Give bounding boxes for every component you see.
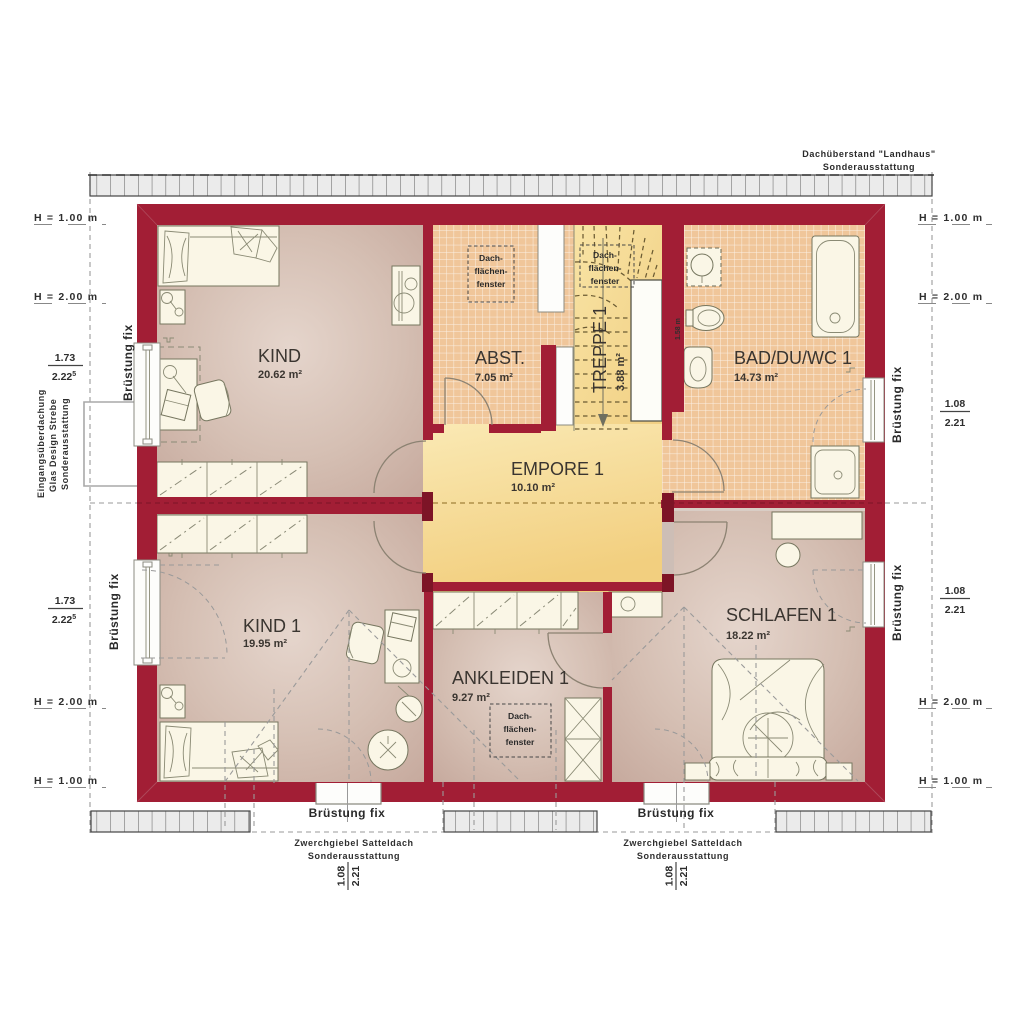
svg-text:Glas Design Strebe: Glas Design Strebe: [48, 399, 58, 492]
svg-text:H = 1.00 m: H = 1.00 m: [919, 212, 983, 224]
svg-text:1.58 m: 1.58 m: [675, 318, 682, 340]
svg-text:10.10 m²: 10.10 m²: [511, 482, 555, 494]
svg-text:Brüstung fix: Brüstung fix: [107, 573, 121, 650]
svg-text:SCHLAFEN 1: SCHLAFEN 1: [726, 605, 837, 625]
svg-text:Zwerchgiebel Satteldach: Zwerchgiebel Satteldach: [294, 838, 413, 848]
svg-text:Dachüberstand "Landhaus": Dachüberstand "Landhaus": [802, 149, 935, 159]
svg-text:TREPPE 1: TREPPE 1: [590, 306, 610, 393]
svg-text:fenster: fenster: [477, 279, 506, 289]
svg-text:Sonderausstattung: Sonderausstattung: [308, 851, 400, 861]
svg-text:2.21: 2.21: [945, 417, 966, 429]
svg-text:20.62 m²: 20.62 m²: [258, 369, 302, 381]
svg-text:Brüstung fix: Brüstung fix: [121, 324, 135, 401]
svg-text:flächen-: flächen-: [504, 724, 537, 734]
svg-text:7.05 m²: 7.05 m²: [475, 372, 513, 384]
svg-text:H = 1.00 m: H = 1.00 m: [919, 775, 983, 787]
svg-text:fenster: fenster: [506, 737, 535, 747]
svg-text:1.08: 1.08: [664, 866, 676, 887]
svg-text:1.73: 1.73: [55, 352, 76, 364]
svg-text:H = 2.00 m: H = 2.00 m: [919, 696, 983, 708]
svg-text:KIND: KIND: [258, 346, 301, 366]
svg-text:18.22 m²: 18.22 m²: [726, 630, 770, 642]
svg-text:Sonderausstattung: Sonderausstattung: [60, 398, 70, 490]
svg-text:Brüstung fix: Brüstung fix: [309, 806, 386, 820]
svg-text:19.95 m²: 19.95 m²: [243, 638, 287, 650]
svg-text:BAD/DU/WC 1: BAD/DU/WC 1: [734, 348, 852, 368]
svg-text:Brüstung fix: Brüstung fix: [638, 806, 715, 820]
svg-text:Sonderausstattung: Sonderausstattung: [823, 162, 915, 172]
svg-text:Sonderausstattung: Sonderausstattung: [637, 851, 729, 861]
svg-text:flächen-: flächen-: [475, 266, 508, 276]
svg-text:H = 1.00 m: H = 1.00 m: [34, 775, 98, 787]
svg-text:H = 2.00 m: H = 2.00 m: [34, 291, 98, 303]
svg-text:1.73: 1.73: [55, 595, 76, 607]
svg-text:2.21: 2.21: [678, 866, 690, 887]
svg-text:Zwerchgiebel Satteldach: Zwerchgiebel Satteldach: [623, 838, 742, 848]
svg-text:1.08: 1.08: [945, 398, 966, 410]
svg-text:Dach-: Dach-: [479, 253, 503, 263]
svg-text:2.21: 2.21: [945, 604, 966, 616]
svg-text:ANKLEIDEN 1: ANKLEIDEN 1: [452, 668, 569, 688]
svg-text:H = 1.00 m: H = 1.00 m: [34, 212, 98, 224]
svg-text:2.21: 2.21: [350, 866, 362, 887]
svg-text:Brüstung fix: Brüstung fix: [890, 366, 904, 443]
svg-text:flächen-: flächen-: [589, 263, 622, 273]
svg-text:1.08: 1.08: [336, 866, 348, 887]
svg-text:1.08: 1.08: [945, 585, 966, 597]
svg-text:9.27 m²: 9.27 m²: [452, 692, 490, 704]
svg-text:14.73 m²: 14.73 m²: [734, 372, 778, 384]
svg-text:3.88 m²: 3.88 m²: [615, 353, 627, 391]
svg-text:ABST.: ABST.: [475, 348, 525, 368]
svg-text:EMPORE 1: EMPORE 1: [511, 459, 604, 479]
svg-text:Eingangsüberdachung: Eingangsüberdachung: [36, 389, 46, 498]
svg-text:Dach-: Dach-: [593, 250, 617, 260]
svg-text:fenster: fenster: [591, 276, 620, 286]
svg-text:H = 2.00 m: H = 2.00 m: [34, 696, 98, 708]
svg-text:Brüstung fix: Brüstung fix: [890, 564, 904, 641]
svg-text:KIND 1: KIND 1: [243, 616, 301, 636]
svg-text:Dach-: Dach-: [508, 711, 532, 721]
svg-text:H = 2.00 m: H = 2.00 m: [919, 291, 983, 303]
